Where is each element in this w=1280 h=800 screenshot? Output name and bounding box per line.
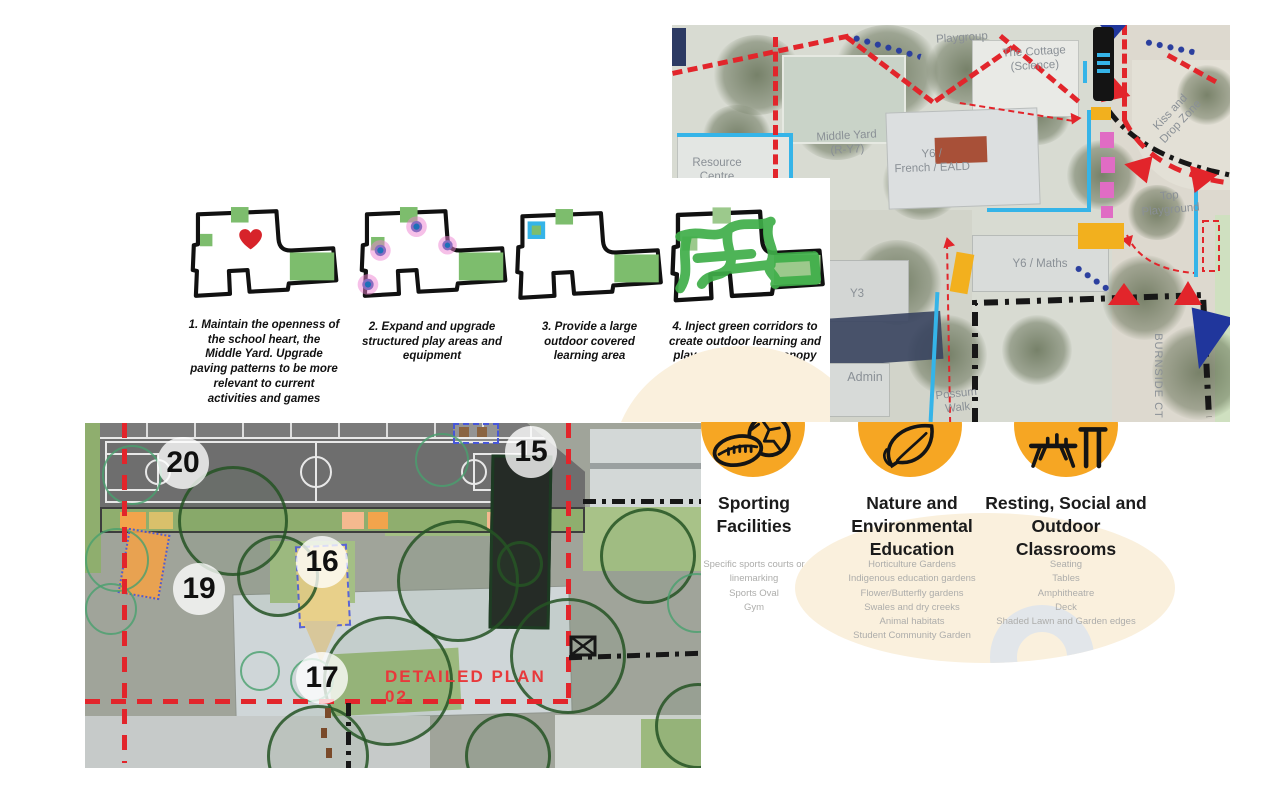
leaf-icon	[865, 413, 955, 477]
category-items-resting: Seating Tables Amphitheatre Deck Shaded …	[996, 558, 1136, 629]
marker-badge-17: 17	[296, 652, 348, 704]
marker-badge-20: 20	[157, 437, 209, 489]
picnic-table-icon	[1020, 413, 1112, 477]
strategy-diagram-1	[183, 206, 343, 301]
map-label-y3: Y3	[837, 287, 877, 301]
category-title-nature: Nature and Environmental Education	[828, 492, 996, 560]
category-items-nature: Horticulture Gardens Indigenous educatio…	[832, 558, 992, 644]
master-plan-page: Sporting Facilities Nature and Environme…	[0, 0, 1280, 800]
strategy-strip: 1. Maintain the openness of the school h…	[160, 178, 830, 422]
map-label-admin: Admin	[830, 370, 900, 386]
strategy-caption-3: 3. Provide a large outdoor covered learn…	[522, 320, 657, 364]
category-items-sporting: Specific sports courts or linemarking Sp…	[684, 558, 824, 615]
marker-badge-19: 19	[173, 563, 225, 615]
strategy-diagram-4	[665, 206, 827, 306]
marker-badge-16: 16	[296, 536, 348, 588]
strategy-diagram-2	[352, 206, 512, 301]
map-label-y6-french: Y6 / French / EALD	[877, 145, 988, 178]
detailed-plan-label: DETAILED PLAN 02	[385, 667, 575, 707]
map-label-y6-maths: Y6 / Maths	[990, 257, 1090, 271]
marker-badge-15: 15	[505, 426, 557, 478]
strategy-diagram-3	[510, 208, 665, 303]
detail-aerial-photo: 20 19 16 15 17 DETAILED PLAN 02	[85, 423, 701, 768]
map-label-burnside-ct: BURNSIDE CT	[1150, 321, 1164, 422]
category-title-sporting: Sporting Facilities	[690, 492, 818, 538]
strategy-caption-2: 2. Expand and upgrade structured play ar…	[356, 320, 508, 364]
gate-symbol	[569, 635, 597, 657]
plan-boundary-left	[122, 423, 127, 763]
map-label-cottage: The Cottage (Science)	[976, 42, 1092, 77]
category-title-resting: Resting, Social and Outdoor Classrooms	[982, 492, 1150, 560]
crossing-icon	[1093, 27, 1114, 101]
strategy-caption-1: 1. Maintain the openness of the school h…	[188, 318, 340, 406]
